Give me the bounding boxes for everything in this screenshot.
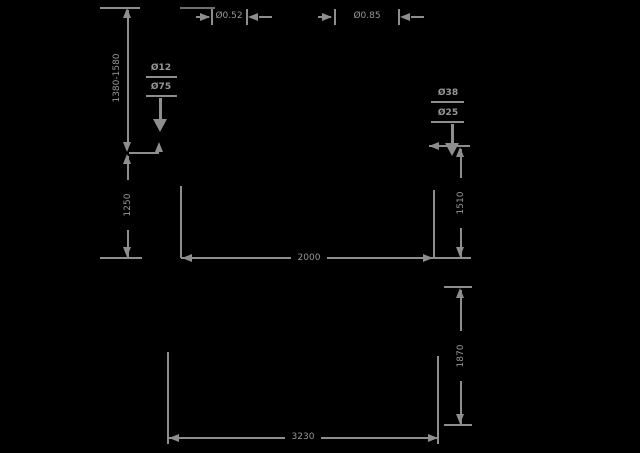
lower-width-label: 3230 (285, 431, 321, 443)
callout-underline (431, 121, 464, 123)
arrowhead-left (169, 434, 179, 442)
arrowhead-down (123, 142, 131, 152)
top-dia-left-label: Ø0.52 (212, 10, 246, 22)
lower-right-leg (437, 356, 439, 444)
lower-left-leg (167, 352, 169, 444)
callout-underline (431, 101, 464, 103)
top-dia-right-label: Ø0.85 (336, 10, 398, 22)
frame-top-edge (180, 7, 215, 9)
bottom-reference-tick (444, 424, 472, 426)
dim-tail (259, 16, 272, 18)
arrowhead-left (400, 13, 410, 21)
hook-height-label: 1510 (454, 178, 468, 228)
height-range-label: 1380-1580 (110, 33, 124, 123)
dimension-diagram: 1380-1580 1250 Ø12 Ø75 Ø0.52 Ø0.85 2000 … (0, 0, 640, 453)
upper-right-leg (433, 190, 435, 258)
width-label: 2000 (291, 252, 327, 264)
lower-height-label: 1870 (454, 331, 468, 381)
left-pole-dia-label-1: Ø12 (146, 62, 176, 74)
height-range-dim-line (127, 10, 129, 142)
arrowhead-left (248, 13, 258, 21)
arrowhead-left (182, 254, 192, 262)
callout-arrow-shaft (159, 98, 162, 120)
ground-reference-tick (100, 257, 142, 259)
arrowhead-down (153, 119, 167, 132)
upper-left-leg (180, 186, 182, 258)
arrowhead-right (322, 13, 332, 21)
arrowhead-right (423, 254, 433, 262)
right-pole-dia-label-2: Ø25 (432, 107, 464, 119)
pole-height-label: 1250 (121, 180, 135, 230)
arrowhead-down (456, 247, 464, 257)
arrowhead-up (155, 142, 163, 152)
arrowhead-down (456, 414, 464, 424)
hook-leader-line (129, 152, 159, 154)
right-pole-dia-label-1: Ø38 (432, 87, 464, 99)
left-pole-dia-label-2: Ø75 (146, 81, 176, 93)
callout-underline (146, 76, 177, 78)
arrowhead-right (428, 434, 438, 442)
callout-underline (146, 95, 177, 97)
arrowhead-down (123, 247, 131, 257)
callout-arrow-shaft (451, 124, 454, 144)
dim-tail (411, 16, 424, 18)
arrowhead-right (200, 13, 210, 21)
top-reference-tick (100, 7, 140, 9)
